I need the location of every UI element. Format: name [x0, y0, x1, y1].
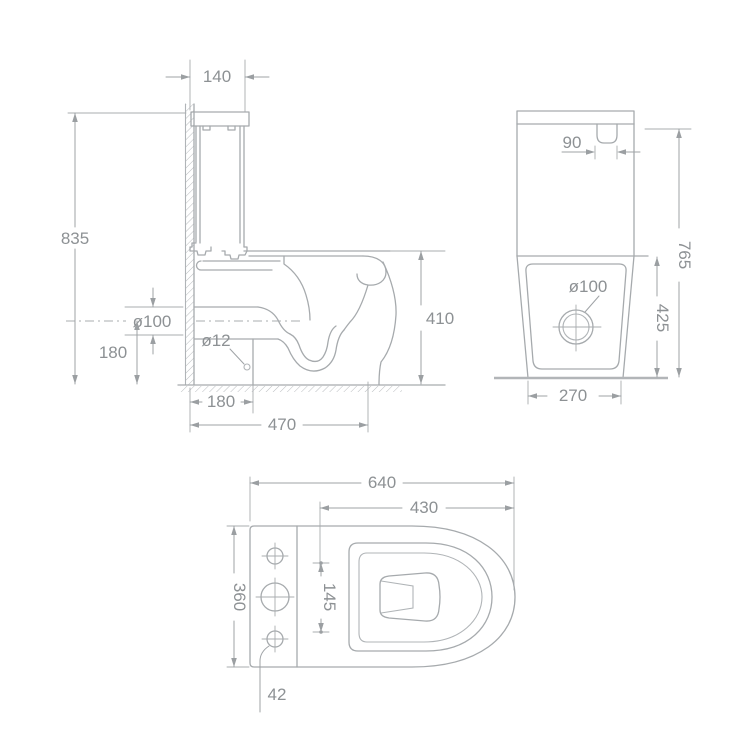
dim-fixing-hole: ø12	[201, 331, 244, 364]
dim-label-140: 140	[203, 67, 231, 86]
technical-drawing-canvas: 140 835 ø100 180 ø12	[0, 0, 750, 750]
toilet-dimension-diagram: 140 835 ø100 180 ø12	[0, 0, 750, 750]
dim-label-430: 430	[410, 498, 438, 517]
bowl-section	[194, 251, 396, 385]
dim-hinge-spacing: 145	[313, 561, 339, 634]
dim-label-360: 360	[230, 583, 249, 611]
dim-label-470: 470	[268, 415, 296, 434]
dim-label-835: 835	[61, 229, 89, 248]
dim-overall-height-rear: 765	[645, 129, 694, 377]
wall-hatch	[186, 104, 195, 385]
dim-label-640: 640	[368, 473, 396, 492]
dim-base-width: 270	[528, 381, 621, 405]
dim-outlet-diameter-rear: ø100	[569, 277, 608, 312]
side-section-view: 140 835 ø100 180 ø12	[61, 60, 454, 434]
dim-label-145: 145	[320, 583, 339, 611]
sump-outline	[380, 573, 440, 621]
dim-hole-42: 42	[260, 646, 286, 712]
dim-label-42: 42	[268, 685, 287, 704]
dim-label-410: 410	[426, 309, 454, 328]
dim-lower-body-height: 425	[653, 257, 672, 377]
rear-elevation-view: 90 ø100 765 425 270	[494, 111, 694, 405]
dim-label-270: 270	[559, 386, 587, 405]
plan-view: 640 430 360 145 42	[227, 473, 515, 712]
dim-label-765: 765	[675, 241, 694, 269]
dim-label-o100-rear: ø100	[569, 277, 608, 296]
flush-button	[597, 124, 617, 143]
dim-button-width: 90	[562, 133, 640, 159]
dim-overall-length: 640	[250, 473, 514, 590]
mounting-holes	[256, 543, 294, 652]
dim-cistern-depth: 140	[166, 60, 269, 112]
cistern-section	[190, 112, 249, 259]
dim-label-180-setout: 180	[207, 392, 235, 411]
dim-overall-width: 360	[227, 526, 249, 667]
dim-label-425: 425	[653, 304, 672, 332]
plan-body	[250, 526, 515, 667]
fixing-hole	[244, 364, 250, 370]
dim-rim-height: 410	[390, 251, 454, 385]
rear-body	[517, 111, 648, 378]
dim-label-90: 90	[563, 133, 582, 152]
dim-outlet-diameter-side: ø100	[125, 288, 183, 354]
dim-label-180-height: 180	[99, 343, 127, 362]
dim-label-o12: ø12	[201, 331, 230, 350]
